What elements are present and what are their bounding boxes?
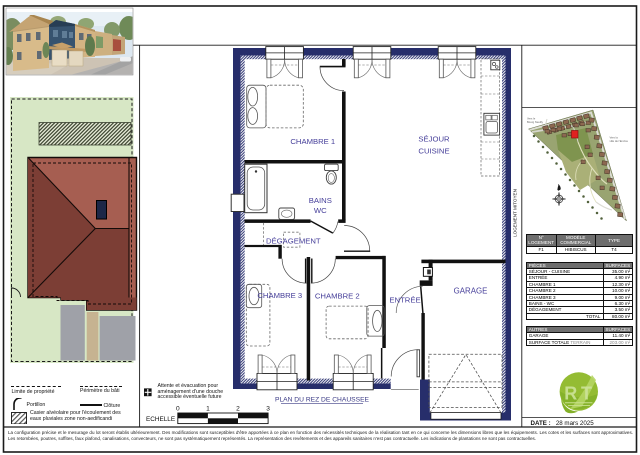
svg-text:BAINS: BAINS: [309, 196, 332, 205]
svg-text:SÉJOUR: SÉJOUR: [418, 135, 450, 144]
svg-text:GARAGE: GARAGE: [454, 287, 488, 296]
svg-text:T: T: [581, 384, 592, 404]
svg-text:PLAN DU REZ DE CHAUSSEE: PLAN DU REZ DE CHAUSSEE: [275, 397, 370, 404]
svg-text:DÉGAGEMENT: DÉGAGEMENT: [266, 237, 321, 246]
svg-text:1: 1: [206, 406, 210, 413]
svg-text:CHAMBRE 2: CHAMBRE 2: [315, 292, 360, 301]
svg-text:LOGEMENT MITOYEN: LOGEMENT MITOYEN: [513, 189, 518, 237]
svg-text:CUISINE: CUISINE: [418, 147, 449, 156]
svg-text:CHAMBRE 3: CHAMBRE 3: [257, 291, 302, 300]
svg-text:ENTRÉE: ENTRÉE: [389, 296, 420, 305]
svg-text:ECHELLE :: ECHELLE :: [146, 416, 179, 423]
svg-text:3: 3: [266, 406, 270, 413]
svg-text:WC: WC: [314, 206, 327, 215]
svg-text:Bourg Neuilly: Bourg Neuilly: [527, 120, 544, 124]
svg-text:ville de l'Enclos: ville de l'Enclos: [610, 139, 629, 143]
svg-text:CHAMBRE 1: CHAMBRE 1: [290, 137, 335, 146]
svg-text:2: 2: [236, 406, 240, 413]
svg-text:R: R: [564, 384, 577, 404]
svg-text:0: 0: [176, 406, 180, 413]
